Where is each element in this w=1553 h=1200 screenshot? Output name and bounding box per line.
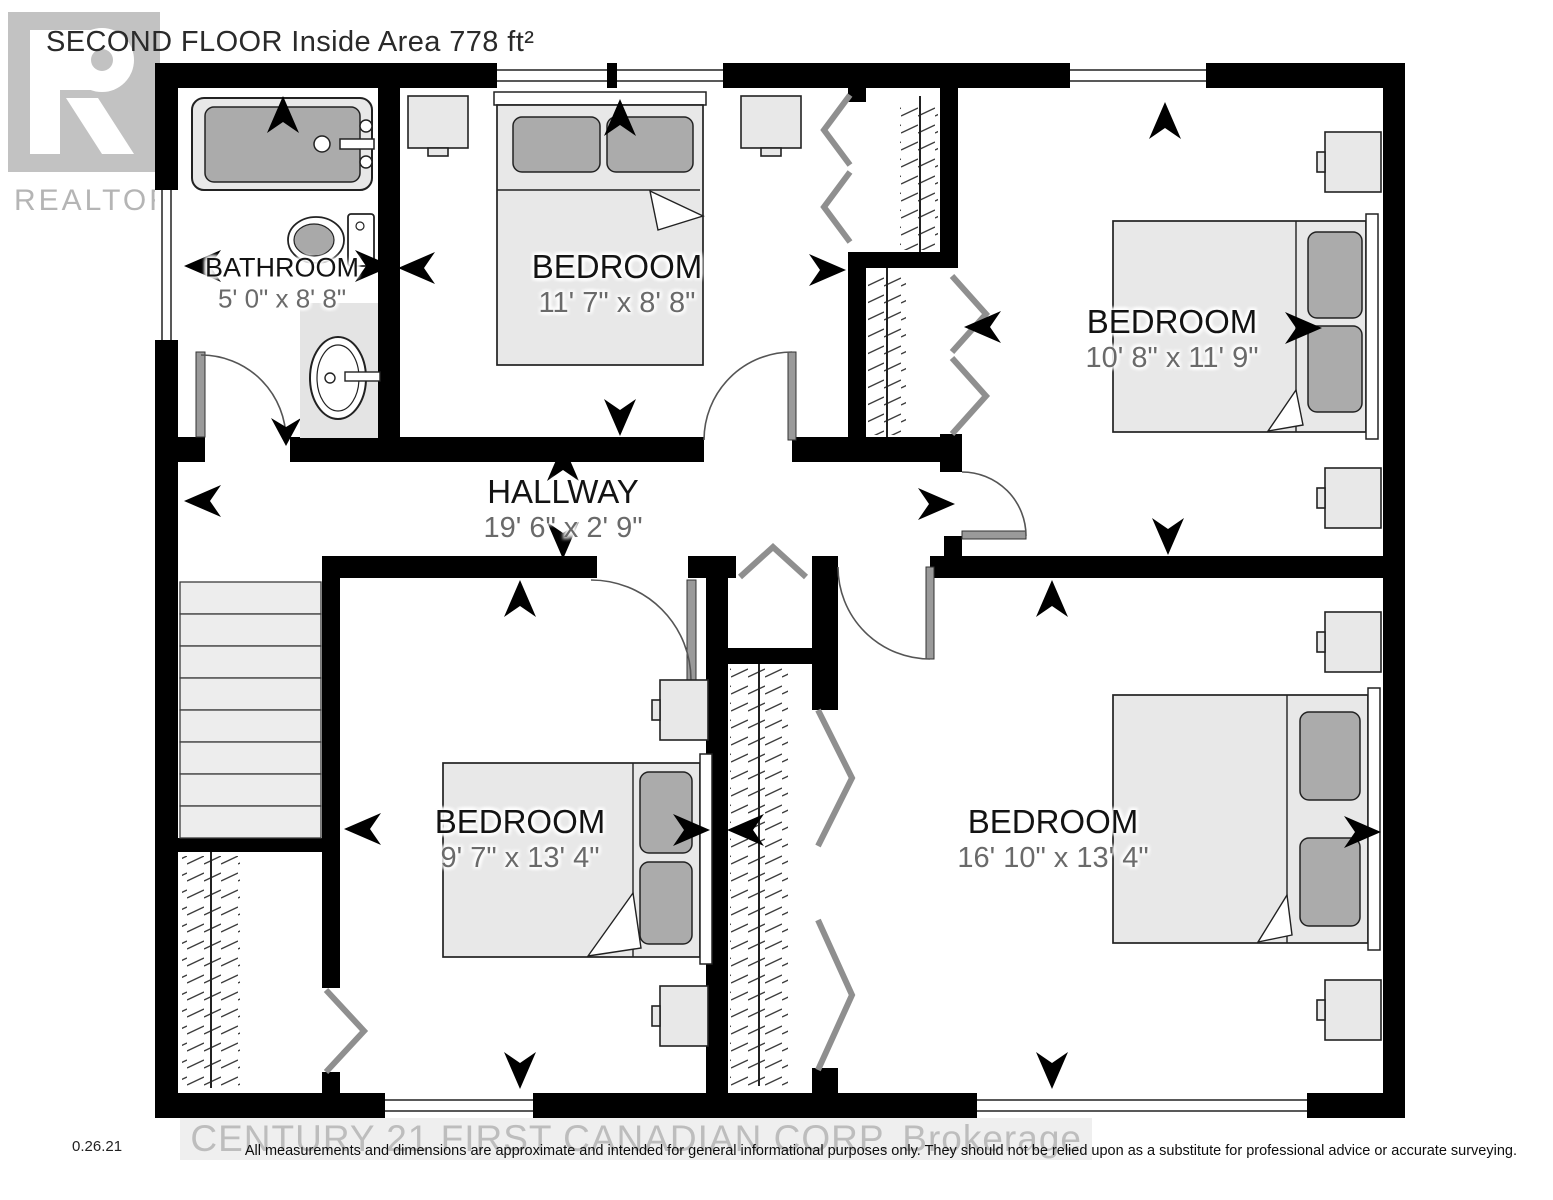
door-bedroom-bottom-right	[838, 567, 934, 659]
pillow	[1300, 838, 1360, 926]
disclaimer-text: All measurements and dimensions are appr…	[245, 1143, 1517, 1159]
door-bedroom-top	[704, 352, 796, 440]
dim-arrow-left-bedroom-top	[398, 252, 435, 284]
dim-arrow-left-bedroom-bottom-left	[344, 813, 381, 845]
bifold-door-linen-closet	[740, 547, 806, 577]
nightstand	[652, 680, 708, 740]
bifold-door-stairs-closet	[326, 990, 364, 1072]
dim-arrow-right-hallway	[918, 488, 955, 520]
door-bedroom-bottom-left	[591, 580, 696, 680]
nightstand	[408, 96, 468, 156]
dim-arrow-down-hallway	[547, 522, 579, 559]
dim-arrow-up-bedroom-right	[1149, 102, 1181, 139]
window-left-bathroom	[155, 190, 178, 340]
pillow	[1308, 326, 1362, 412]
dim-arrow-down-bedroom-right	[1152, 518, 1184, 555]
bifold-door-center-closet-1	[818, 710, 852, 846]
nightstand	[1317, 612, 1381, 672]
dim-arrow-left-bathroom	[184, 250, 221, 282]
nightstand	[741, 96, 801, 156]
dim-arrow-down-bedroom-top	[604, 399, 636, 436]
bifold-door-center-closet-2	[818, 920, 852, 1070]
pillow	[607, 117, 693, 172]
window-top-left	[497, 63, 607, 88]
page-title: SECOND FLOOR Inside Area 778 ft²	[46, 26, 534, 59]
tub-faucet	[340, 139, 374, 149]
version-stamp: 0.26.21	[72, 1138, 122, 1155]
pillow	[513, 117, 600, 172]
bifold-door-top-closet-2	[824, 172, 850, 242]
pillow	[640, 862, 692, 944]
closet-rod-center	[730, 664, 788, 1086]
dim-arrow-down-bedroom-bottom-left	[504, 1052, 536, 1089]
tub-drain	[314, 136, 330, 152]
sink-faucet	[345, 372, 380, 381]
bathroom-sink	[300, 303, 380, 438]
pillow	[1300, 712, 1360, 800]
dim-arrow-up-bedroom-bottom-left	[504, 580, 536, 617]
nightstand	[1317, 980, 1381, 1040]
closet-rod-top-middle	[900, 96, 938, 252]
bed-top-bedroom	[494, 92, 706, 365]
floor-plan-drawing	[0, 0, 1553, 1200]
bifold-door-right-closet-1	[952, 276, 986, 352]
window-top-middle	[617, 63, 723, 88]
nightstand	[1317, 132, 1381, 192]
window-top-right	[1070, 63, 1206, 88]
floor-plan-page: REALTOR ®	[0, 0, 1553, 1200]
window-bottom-left	[385, 1093, 533, 1118]
dim-arrow-left-hallway	[184, 485, 221, 517]
door-bedroom-right	[962, 472, 1026, 539]
nightstand	[1317, 468, 1381, 528]
door-bathroom	[196, 352, 286, 440]
window-bottom-right	[977, 1093, 1307, 1118]
bed-right-bedroom	[1113, 214, 1378, 439]
dim-arrow-up-bedroom-bottom-right	[1036, 580, 1068, 617]
closet-rod-bottom-left	[182, 852, 240, 1088]
dim-arrow-right-bedroom-top	[809, 254, 846, 286]
bed-bottom-left-bedroom	[443, 754, 712, 964]
dim-arrow-down-bedroom-bottom-right	[1036, 1052, 1068, 1089]
staircase	[180, 582, 321, 838]
pillow	[1308, 232, 1362, 318]
closet-rod-top-right	[868, 268, 906, 437]
nightstand	[652, 986, 708, 1046]
bifold-door-top-closet-1	[824, 95, 850, 165]
bed-bottom-right-bedroom	[1113, 688, 1380, 950]
bifold-door-right-closet-2	[952, 358, 986, 434]
